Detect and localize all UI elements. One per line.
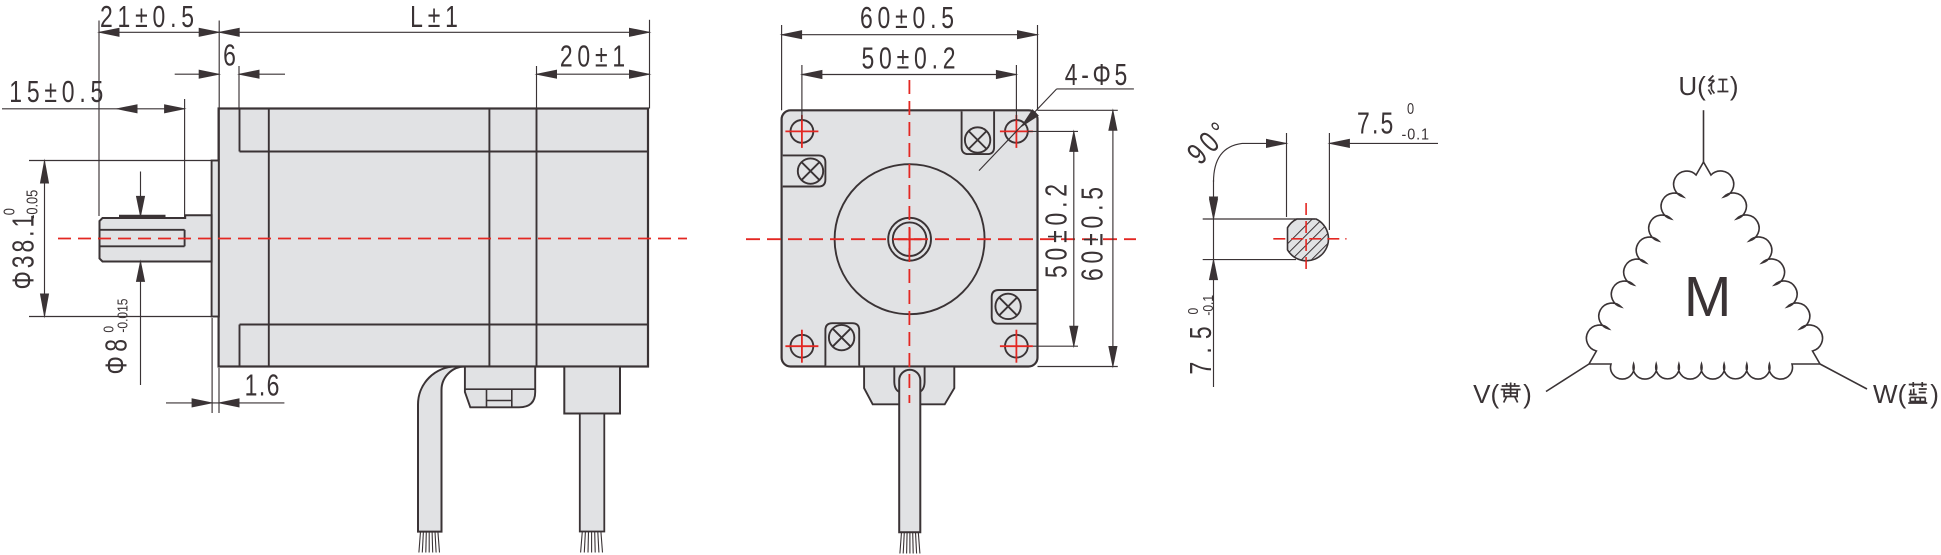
svg-text:15±0.5: 15±0.5: [9, 74, 108, 109]
svg-text:21±0.5: 21±0.5: [100, 0, 199, 34]
svg-text:7.5: 7.5: [1183, 318, 1218, 374]
svg-text:Φ8: Φ8: [98, 335, 133, 375]
svg-text:50±0.2: 50±0.2: [861, 40, 960, 75]
svg-text:0: 0: [1407, 101, 1414, 119]
svg-text:U(: U(: [1678, 71, 1706, 101]
svg-text:): ): [1523, 379, 1532, 409]
svg-text:): ): [1930, 379, 1939, 409]
svg-text:-0.1: -0.1: [1402, 126, 1430, 144]
svg-text:-0.05: -0.05: [24, 190, 42, 219]
svg-text:M: M: [1684, 265, 1731, 329]
svg-text:1.6: 1.6: [245, 367, 281, 402]
svg-text:60±0.5: 60±0.5: [1074, 182, 1109, 281]
svg-text:-0.015: -0.015: [114, 299, 131, 333]
svg-text:W(: W(: [1873, 379, 1907, 409]
svg-text:L±1: L±1: [410, 0, 463, 34]
svg-text:60±0.5: 60±0.5: [860, 0, 959, 35]
svg-text:4-Φ5: 4-Φ5: [1065, 57, 1131, 92]
svg-text:20±1: 20±1: [560, 38, 630, 73]
svg-text:50±0.2: 50±0.2: [1038, 179, 1073, 278]
svg-text:6: 6: [223, 37, 241, 72]
svg-text:-0.1: -0.1: [1200, 295, 1217, 316]
svg-text:Φ38.1: Φ38.1: [5, 212, 40, 290]
svg-text:7.5: 7.5: [1357, 105, 1396, 140]
svg-text:V(: V(: [1473, 379, 1499, 409]
svg-text:0: 0: [1, 208, 19, 215]
svg-text:): ): [1730, 71, 1739, 101]
